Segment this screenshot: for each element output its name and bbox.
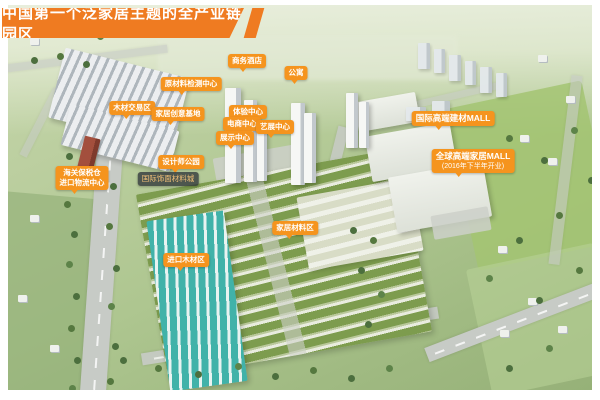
label-text: 家居材料区 — [276, 223, 314, 233]
map-label-exhibition-center: 展示中心 — [216, 131, 254, 145]
label-text: 原材料检测中心 — [165, 79, 218, 89]
label-text: 展示中心 — [220, 133, 250, 143]
tower — [359, 102, 369, 148]
map-label-global-home-mall: 全球高端家居MALL(2016年下半年开业) — [432, 149, 515, 173]
house — [18, 295, 27, 302]
map-label-business-hotel: 商务酒店 — [228, 54, 266, 68]
banner-title: 中国第一个泛家居主题的全产业链园区 — [2, 2, 244, 44]
map-label-imported-timber-zone: 进口木材区 — [163, 253, 209, 267]
map-label-material-testing-center: 原材料检测中心 — [161, 77, 222, 91]
map-label-apartment: 公寓 — [285, 66, 308, 80]
residential-block — [496, 73, 507, 97]
screenshot-frame: 商务酒店 公寓 原材料检测中心 木材交易区 家居创意基地 体验中心 电商中心 艺… — [0, 0, 600, 400]
label-text: 艺展中心 — [260, 122, 290, 132]
label-text: 设计师公园 — [162, 157, 200, 167]
tree-cluster-south — [120, 357, 127, 364]
tree-cluster-mall — [350, 227, 357, 234]
label-text: 国际高端建材MALL — [416, 113, 491, 124]
residential-block — [418, 43, 430, 69]
house — [538, 55, 547, 62]
house — [558, 326, 567, 333]
house — [566, 96, 575, 103]
residential-block — [449, 55, 461, 81]
label-text: 体验中心 — [233, 107, 263, 117]
label-text: 全球高端家居MALL — [436, 151, 511, 162]
residential-block — [434, 49, 445, 73]
aerial-scene: 商务酒店 公寓 原材料检测中心 木材交易区 家居创意基地 体验中心 电商中心 艺… — [8, 5, 592, 390]
house — [30, 38, 39, 45]
tower — [346, 93, 358, 148]
map-label-bonded-warehouse: 海关保税仓进口物流中心 — [56, 166, 109, 190]
map-label-designer-park: 设计师公园 — [158, 155, 204, 169]
house — [30, 215, 39, 222]
title-banner: 中国第一个泛家居主题的全产业链园区 — [2, 8, 244, 38]
residential-block — [465, 61, 476, 85]
label-text: 海关保税仓 — [60, 168, 105, 178]
map-label-art-exhibition-center: 艺展中心 — [256, 120, 294, 134]
house — [520, 135, 529, 142]
label-subtext: (2016年下半年开业) — [436, 162, 511, 171]
label-text: 进口木材区 — [167, 255, 205, 265]
tower — [291, 103, 305, 185]
map-label-intl-building-material-mall: 国际高端建材MALL — [412, 111, 495, 126]
label-text: 进口物流中心 — [60, 178, 105, 188]
tree-cluster-road — [66, 153, 73, 160]
map-label-home-materials-zone: 家居材料区 — [272, 221, 318, 235]
house — [500, 330, 509, 337]
residential-block — [480, 67, 492, 93]
label-text: 公寓 — [289, 68, 304, 78]
distant-buildings-blur — [158, 35, 458, 80]
map-label-home-creative-base: 家居创意基地 — [152, 107, 205, 121]
label-text: 家居创意基地 — [156, 109, 201, 119]
label-text: 木材交易区 — [113, 103, 151, 113]
house — [50, 345, 59, 352]
label-text: 电商中心 — [227, 119, 257, 129]
label-text: 国际饰面材料城 — [142, 174, 195, 184]
tower — [304, 113, 316, 183]
map-label-veneer-material-city: 国际饰面材料城 — [138, 172, 199, 186]
label-text: 商务酒店 — [232, 56, 262, 66]
house — [528, 298, 537, 305]
house — [548, 158, 557, 165]
map-label-timber-trade-zone: 木材交易区 — [109, 101, 155, 115]
house — [498, 246, 507, 253]
